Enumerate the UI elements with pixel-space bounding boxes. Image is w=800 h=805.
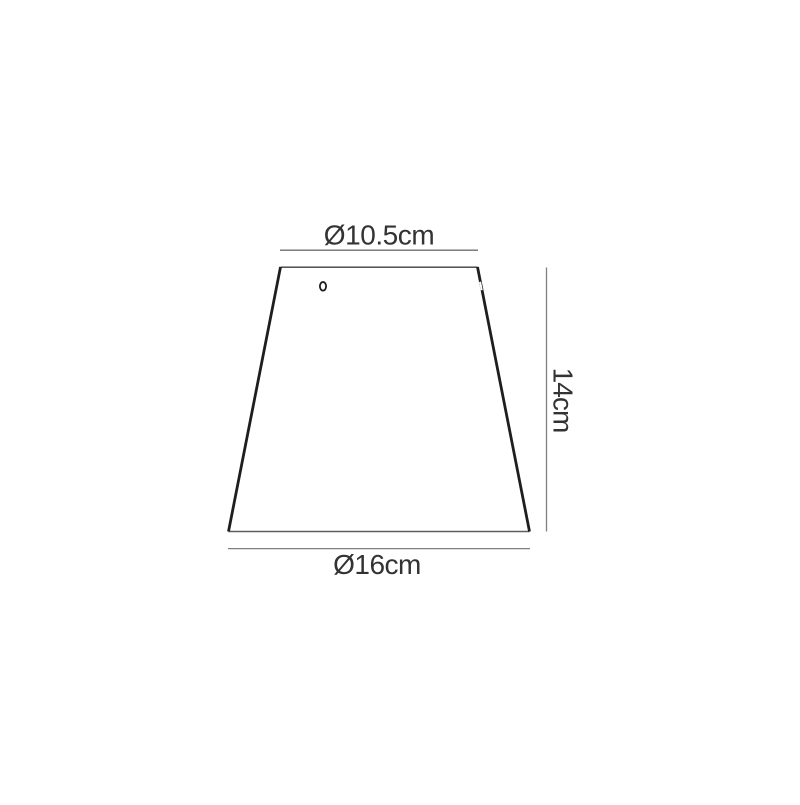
svg-text:Ø10.5cm: Ø10.5cm: [324, 219, 434, 250]
svg-text:14cm: 14cm: [548, 368, 579, 433]
svg-text:Ø16cm: Ø16cm: [333, 549, 421, 580]
